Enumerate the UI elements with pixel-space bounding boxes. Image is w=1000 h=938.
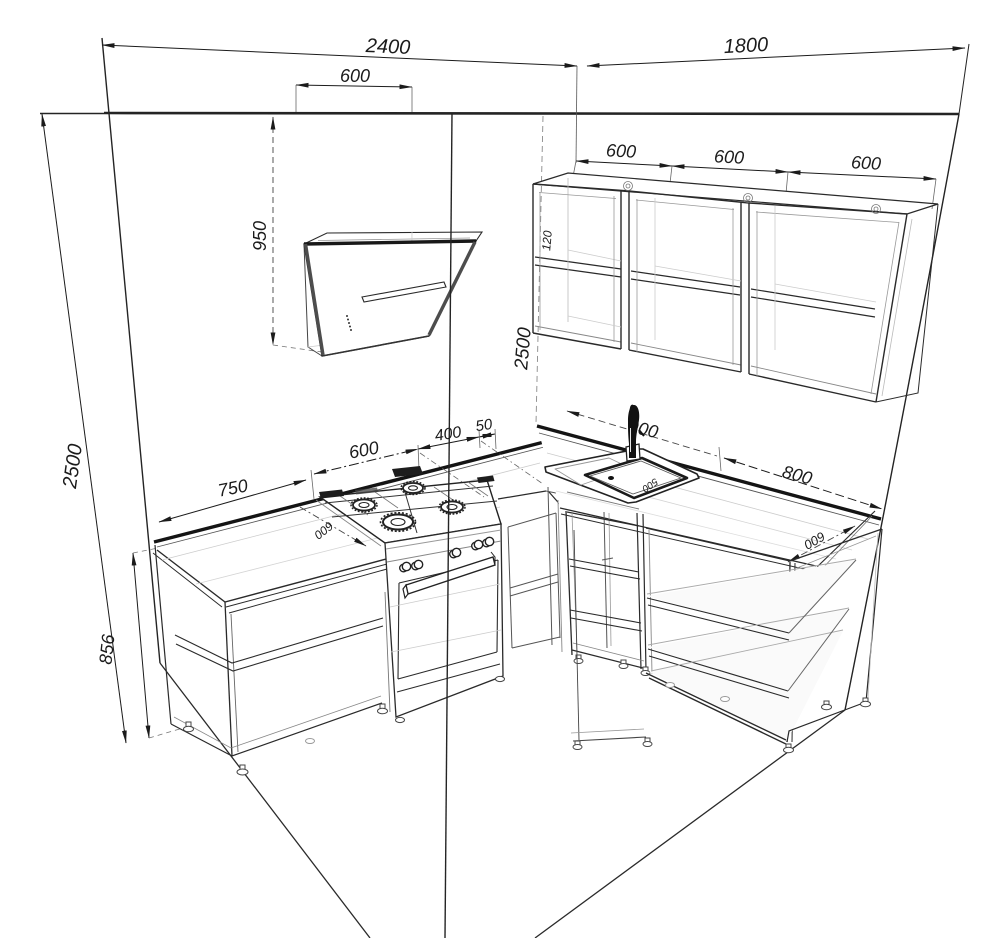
svg-text:120: 120 (539, 230, 555, 251)
svg-text:50: 50 (474, 416, 494, 436)
svg-text:1800: 1800 (723, 34, 769, 58)
svg-text:856: 856 (96, 632, 119, 665)
svg-text:600: 600 (714, 146, 745, 168)
svg-text:950: 950 (250, 221, 270, 251)
svg-text:600: 600 (850, 152, 881, 174)
svg-text:2400: 2400 (364, 35, 410, 59)
svg-text:2500: 2500 (511, 326, 536, 371)
svg-text:600: 600 (606, 140, 637, 162)
svg-text:600: 600 (340, 66, 370, 86)
